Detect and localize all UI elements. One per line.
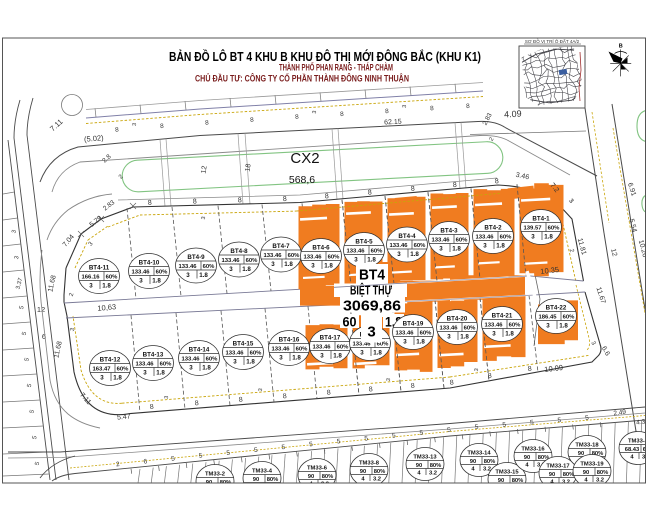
svg-text:1.8: 1.8 [373, 350, 382, 357]
svg-text:3: 3 [360, 350, 364, 357]
svg-text:BT4-4: BT4-4 [398, 233, 416, 240]
svg-text:3: 3 [354, 257, 358, 264]
svg-text:TM33-2: TM33-2 [205, 472, 225, 478]
svg-text:BT4-17: BT4-17 [320, 334, 341, 341]
svg-text:60%: 60% [464, 325, 477, 331]
svg-text:133.46: 133.46 [484, 322, 503, 328]
svg-text:BT4-7: BT4-7 [272, 243, 290, 250]
svg-text:8: 8 [495, 178, 499, 185]
svg-text:BT4-8: BT4-8 [230, 248, 248, 255]
svg-text:BT4-2: BT4-2 [484, 224, 502, 231]
svg-text:133.46: 133.46 [312, 344, 331, 350]
svg-text:8: 8 [450, 379, 455, 386]
svg-text:133.46: 133.46 [346, 248, 365, 254]
svg-text:3: 3 [143, 370, 147, 377]
svg-text:5.47: 5.47 [117, 413, 131, 421]
svg-text:3.2: 3.2 [373, 476, 381, 482]
svg-text:80%: 80% [430, 463, 442, 469]
svg-text:8: 8 [238, 197, 242, 204]
svg-text:90: 90 [549, 472, 555, 478]
svg-text:BT4: BT4 [359, 267, 386, 284]
svg-text:60%: 60% [206, 356, 219, 362]
svg-text:8: 8 [528, 366, 533, 373]
svg-text:1.8: 1.8 [460, 334, 469, 341]
svg-text:3: 3 [139, 278, 143, 285]
svg-text:90: 90 [360, 469, 366, 475]
svg-text:3: 3 [447, 334, 451, 341]
svg-text:8: 8 [195, 400, 200, 407]
svg-text:TM33-18: TM33-18 [575, 443, 599, 449]
svg-text:3: 3 [100, 375, 104, 382]
svg-text:133.46: 133.46 [131, 269, 150, 275]
svg-text:TM33-6: TM33-6 [307, 466, 328, 472]
svg-text:B: B [619, 44, 623, 50]
svg-text:60%: 60% [420, 330, 433, 336]
svg-text:90: 90 [416, 463, 422, 469]
svg-text:3: 3 [403, 339, 407, 346]
svg-text:1.8: 1.8 [284, 261, 293, 268]
svg-text:133.46: 133.46 [271, 346, 290, 352]
svg-text:133.46: 133.46 [263, 253, 282, 259]
svg-text:3: 3 [492, 331, 496, 338]
svg-text:1.8: 1.8 [410, 251, 419, 258]
svg-text:3: 3 [439, 246, 443, 253]
svg-text:1.8: 1.8 [367, 257, 376, 264]
svg-text:1.8: 1.8 [559, 323, 568, 330]
svg-text:90: 90 [470, 459, 476, 465]
svg-text:8: 8 [411, 186, 415, 193]
svg-text:3: 3 [89, 283, 93, 290]
svg-text:133.46: 133.46 [221, 258, 240, 264]
svg-text:18: 18 [244, 163, 252, 172]
svg-text:BT4-21: BT4-21 [492, 312, 513, 319]
svg-text:1.8: 1.8 [416, 339, 425, 346]
svg-text:BT4-10: BT4-10 [139, 259, 160, 266]
svg-text:133.46: 133.46 [389, 243, 408, 249]
svg-text:60%: 60% [156, 269, 169, 275]
svg-text:BT4-22: BT4-22 [546, 304, 567, 311]
svg-text:12: 12 [200, 165, 208, 174]
svg-text:BT4-20: BT4-20 [447, 315, 468, 322]
svg-text:8: 8 [453, 182, 457, 189]
svg-text:8: 8 [325, 193, 329, 200]
svg-text:133.46: 133.46 [431, 237, 450, 243]
svg-text:80%: 80% [563, 472, 575, 478]
svg-text:BT4-13: BT4-13 [143, 351, 164, 358]
svg-text:BT4-12: BT4-12 [100, 356, 121, 363]
svg-text:1.8: 1.8 [202, 365, 211, 372]
svg-text:BT4-6: BT4-6 [312, 244, 330, 251]
svg-text:3: 3 [189, 365, 193, 372]
svg-text:133.46: 133.46 [303, 254, 322, 260]
svg-text:60%: 60% [250, 350, 263, 356]
svg-text:3: 3 [546, 323, 550, 330]
svg-text:60%: 60% [160, 361, 173, 367]
svg-text:BT4-19: BT4-19 [403, 320, 424, 327]
svg-text:8: 8 [239, 397, 244, 404]
svg-text:BT4-16: BT4-16 [279, 336, 300, 343]
svg-text:60%: 60% [414, 243, 427, 249]
svg-text:1.8: 1.8 [324, 263, 333, 270]
svg-text:3: 3 [312, 110, 318, 114]
svg-text:THÀNH PHỐ PHAN RANG - THÁP CHÀ: THÀNH PHỐ PHAN RANG - THÁP CHÀM [279, 62, 393, 73]
svg-text:4.3: 4.3 [636, 418, 646, 426]
svg-text:3: 3 [320, 353, 324, 360]
svg-text:BT4-3: BT4-3 [440, 227, 458, 234]
svg-text:68.43: 68.43 [625, 447, 640, 453]
svg-text:TM33-2: TM33-2 [628, 439, 648, 445]
svg-text:60: 60 [343, 314, 357, 330]
svg-text:1.8: 1.8 [152, 278, 161, 285]
svg-text:3: 3 [279, 355, 283, 362]
svg-text:139.57: 139.57 [523, 225, 542, 231]
svg-text:3: 3 [201, 216, 207, 220]
svg-text:1.8: 1.8 [452, 246, 461, 253]
svg-text:80%: 80% [597, 470, 609, 476]
svg-text:TM33-4: TM33-4 [252, 469, 273, 475]
svg-text:TM33-17: TM33-17 [546, 464, 569, 470]
svg-text:90: 90 [524, 455, 530, 461]
svg-text:1.8: 1.8 [156, 370, 165, 377]
svg-text:163.47: 163.47 [92, 366, 111, 372]
svg-text:3: 3 [386, 378, 392, 382]
svg-text:60%: 60% [296, 346, 309, 352]
svg-text:80%: 80% [267, 477, 279, 483]
svg-text:TM33-13: TM33-13 [413, 455, 437, 461]
svg-text:60%: 60% [246, 258, 259, 264]
svg-text:60%: 60% [288, 253, 301, 259]
svg-text:TM33-15: TM33-15 [495, 470, 519, 476]
svg-text:166.16: 166.16 [81, 274, 100, 280]
svg-text:3: 3 [367, 324, 375, 341]
svg-text:568,6: 568,6 [289, 174, 315, 186]
svg-text:60%: 60% [500, 234, 513, 240]
svg-text:60%: 60% [337, 344, 350, 350]
svg-text:80%: 80% [484, 459, 496, 465]
svg-text:60%: 60% [328, 254, 341, 260]
svg-text:62.15: 62.15 [384, 119, 402, 127]
svg-text:80%: 80% [374, 469, 386, 475]
svg-text:8: 8 [193, 198, 197, 205]
svg-text:8: 8 [411, 383, 416, 390]
svg-text:3: 3 [531, 234, 535, 241]
svg-text:8: 8 [327, 389, 332, 396]
svg-text:60%: 60% [117, 366, 130, 372]
svg-text:60%: 60% [203, 264, 216, 270]
svg-text:BT4-1: BT4-1 [532, 215, 550, 222]
svg-text:4.09: 4.09 [504, 109, 522, 120]
svg-text:BT4-5: BT4-5 [355, 238, 373, 245]
svg-text:10,63: 10,63 [97, 302, 116, 313]
svg-text:3: 3 [474, 368, 480, 372]
svg-text:133.46: 133.46 [178, 264, 197, 270]
svg-text:90: 90 [583, 470, 589, 476]
svg-text:3: 3 [132, 123, 138, 127]
svg-text:TM33-16: TM33-16 [521, 447, 545, 453]
svg-text:1.8: 1.8 [246, 359, 255, 366]
svg-text:3: 3 [258, 388, 264, 392]
svg-text:60%: 60% [509, 322, 522, 328]
svg-text:TM33-8: TM33-8 [359, 461, 380, 467]
svg-text:3: 3 [402, 105, 408, 109]
svg-text:60%: 60% [456, 237, 469, 243]
svg-text:90: 90 [308, 474, 314, 480]
svg-text:1.8: 1.8 [102, 283, 111, 290]
svg-text:186.45: 186.45 [538, 314, 557, 320]
svg-text:1.8: 1.8 [113, 375, 122, 382]
svg-text:90: 90 [253, 477, 259, 483]
svg-text:133.46: 133.46 [135, 361, 154, 367]
svg-text:BT4-11: BT4-11 [89, 264, 110, 271]
svg-text:8: 8 [150, 404, 155, 411]
svg-text:133.46: 133.46 [181, 356, 200, 362]
svg-text:8: 8 [369, 386, 374, 393]
svg-text:3: 3 [271, 261, 275, 268]
svg-text:60%: 60% [106, 274, 119, 280]
svg-text:60%: 60% [371, 248, 384, 254]
svg-text:BT4-15: BT4-15 [233, 340, 254, 347]
svg-text:60%: 60% [548, 225, 561, 231]
svg-text:1.8: 1.8 [199, 272, 208, 279]
svg-text:1.8: 1.8 [242, 266, 251, 273]
svg-text:133.46: 133.46 [475, 234, 494, 240]
svg-text:1.8: 1.8 [496, 243, 505, 250]
svg-text:1.8: 1.8 [544, 234, 553, 241]
svg-text:BT4-9: BT4-9 [187, 254, 205, 261]
svg-text:133.46: 133.46 [395, 330, 414, 336]
svg-text:3: 3 [186, 272, 190, 279]
svg-text:3: 3 [229, 266, 233, 273]
svg-text:3: 3 [397, 251, 401, 258]
svg-text:3: 3 [311, 263, 315, 270]
svg-text:1.8: 1.8 [333, 353, 342, 360]
svg-text:8: 8 [368, 189, 372, 196]
svg-text:8: 8 [283, 196, 287, 203]
svg-text:TM33-19: TM33-19 [580, 462, 604, 468]
svg-text:3.2: 3.2 [596, 477, 604, 483]
svg-text:1.8: 1.8 [505, 331, 514, 338]
svg-text:133.46: 133.46 [439, 325, 458, 331]
svg-text:3: 3 [164, 396, 170, 400]
svg-text:133.46: 133.46 [225, 350, 244, 356]
svg-text:3: 3 [483, 243, 487, 250]
svg-text:CHỦ ĐẦU TƯ: CÔNG TY CỔ PHẦN TH: CHỦ ĐẦU TƯ: CÔNG TY CỔ PHẦN THÀNH ĐÔNG N… [195, 73, 409, 84]
svg-text:12: 12 [37, 305, 45, 314]
svg-text:8: 8 [148, 200, 152, 207]
svg-text:80%: 80% [322, 474, 334, 480]
svg-text:BT4-14: BT4-14 [189, 346, 210, 353]
svg-text:3.2: 3.2 [429, 470, 437, 476]
svg-text:1.8: 1.8 [292, 355, 301, 362]
svg-text:8: 8 [283, 393, 288, 400]
svg-text:SƠ ĐỒ VỊ TRÍ Ô ĐẤT 4A/2: SƠ ĐỒ VỊ TRÍ Ô ĐẤT 4A/2 [525, 38, 580, 44]
svg-text:3: 3 [233, 359, 237, 366]
svg-text:60%: 60% [563, 314, 576, 320]
svg-text:3069,86: 3069,86 [343, 298, 401, 315]
svg-text:TM33-14: TM33-14 [467, 451, 491, 457]
svg-text:CX2: CX2 [290, 150, 319, 167]
svg-text:(5.02): (5.02) [84, 133, 105, 144]
